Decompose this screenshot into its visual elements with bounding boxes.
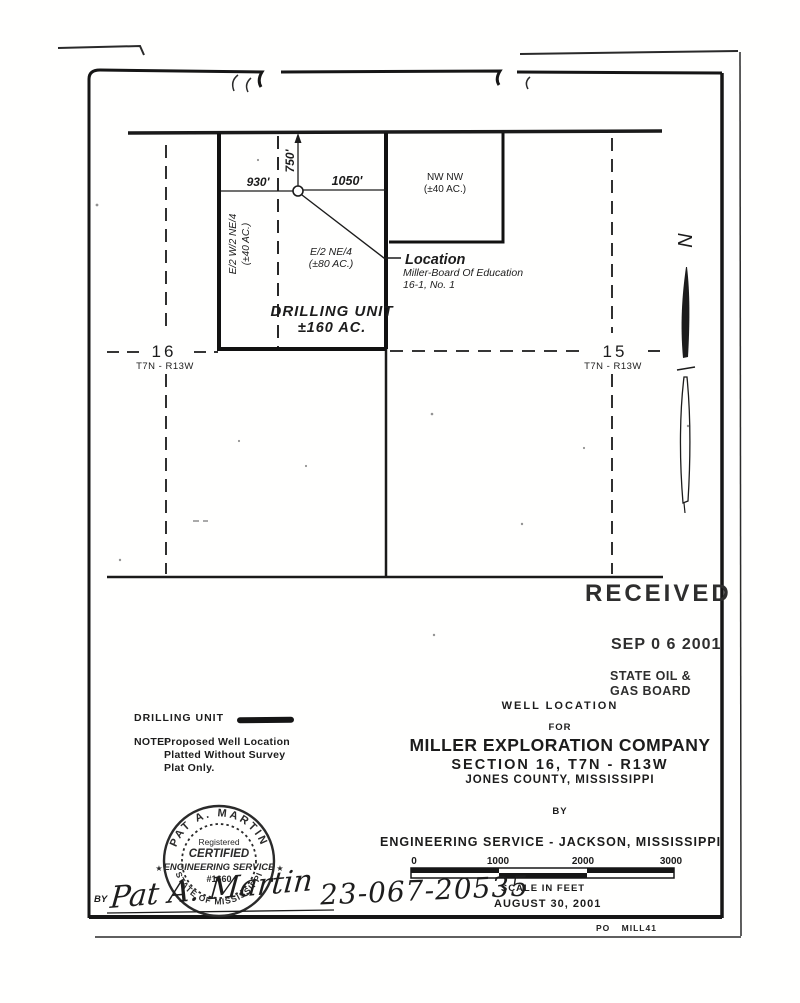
north-arrow: N xyxy=(673,233,695,513)
title-company: MILLER EXPLORATION COMPANY xyxy=(398,735,722,756)
section-15-number: 15 xyxy=(603,342,628,361)
seal-line-certified: CERTIFIED xyxy=(189,848,250,860)
received-stamp: RECEIVED xyxy=(585,580,732,608)
tract-nwnw-label-2: (±40 AC.) xyxy=(424,184,466,195)
well-plat-page: 930' 1050' 750' E/2 W/2 NE/4 (±40 AC.) E… xyxy=(0,0,800,1003)
map-labels: 930' 1050' 750' E/2 W/2 NE/4 (±40 AC.) E… xyxy=(136,148,642,372)
title-well-location: WELL LOCATION xyxy=(398,700,722,712)
tract-west-label: E/2 W/2 NE/4 (±40 AC.) xyxy=(228,213,252,274)
svg-text:E/2 W/2 NE/4: E/2 W/2 NE/4 xyxy=(228,213,239,274)
well-location-marker xyxy=(293,186,303,196)
agency-stamp-line2: GAS BOARD xyxy=(610,684,691,699)
title-section-line: SECTION 16, T7N - R13W xyxy=(398,757,722,773)
dim-east-label: 1050' xyxy=(332,174,364,188)
note-text: Proposed Well Location Platted Without S… xyxy=(164,736,290,775)
title-firm-line: ENGINEERING SERVICE - JACKSON, MISSISSIP… xyxy=(380,835,710,849)
agency-stamp: STATE OIL & GAS BOARD xyxy=(610,669,691,698)
drilling-unit-label: DRILLING UNIT xyxy=(271,303,395,320)
section-16-township: T7N - R13W xyxy=(136,361,194,372)
signature-by-label: BY xyxy=(94,894,107,905)
dim-west-label: 930' xyxy=(247,175,271,189)
location-callout-line1: Miller-Board Of Education xyxy=(403,267,523,279)
section-15-township: T7N - R13W xyxy=(584,361,642,372)
title-county-line: JONES COUNTY, MISSISSIPPI xyxy=(398,774,722,786)
page-border xyxy=(89,70,722,918)
note-line-2: Platted Without Survey xyxy=(164,749,290,762)
location-callout-line2: 16-1, No. 1 xyxy=(403,279,455,291)
title-for: FOR xyxy=(398,722,722,733)
title-by: BY xyxy=(398,806,722,817)
dimension-arrowhead xyxy=(295,133,302,143)
note-line-1: Proposed Well Location xyxy=(164,736,290,749)
north-letter: N xyxy=(673,233,695,248)
scale-tick-0: 0 xyxy=(411,856,417,867)
scan-specks xyxy=(96,159,690,636)
legend-drilling-unit-swatch xyxy=(237,717,294,724)
seal-line-registered: Registered xyxy=(198,837,239,847)
scale-tick-2000: 2000 xyxy=(572,856,595,867)
scale-tick-3000: 3000 xyxy=(660,856,683,867)
agency-stamp-line1: STATE OIL & xyxy=(610,669,691,684)
scale-tick-1000: 1000 xyxy=(487,856,510,867)
legend-drilling-unit-label: DRILLING UNIT xyxy=(134,712,224,724)
note-line-3: Plat Only. xyxy=(164,762,290,775)
location-callout-title: Location xyxy=(405,252,466,268)
footer-code: PO MILL41 xyxy=(596,923,657,933)
tract-center-label-2: (±80 AC.) xyxy=(309,258,353,270)
section-16-number: 16 xyxy=(152,342,177,361)
svg-text:(±40 AC.): (±40 AC.) xyxy=(241,223,252,265)
received-date-stamp: SEP 0 6 2001 xyxy=(611,636,721,654)
seal-star-left: ★ xyxy=(155,864,162,873)
tract-center-label-1: E/2 NE/4 xyxy=(310,246,352,258)
scan-artifacts xyxy=(58,46,741,937)
dim-north-label: 750' xyxy=(283,148,297,172)
top-section-line xyxy=(128,131,662,133)
plat-drawing: 930' 1050' 750' E/2 W/2 NE/4 (±40 AC.) E… xyxy=(0,0,800,1003)
drilling-unit-acreage: ±160 AC. xyxy=(298,320,367,336)
tract-nwnw-label-1: NW NW xyxy=(427,172,464,183)
